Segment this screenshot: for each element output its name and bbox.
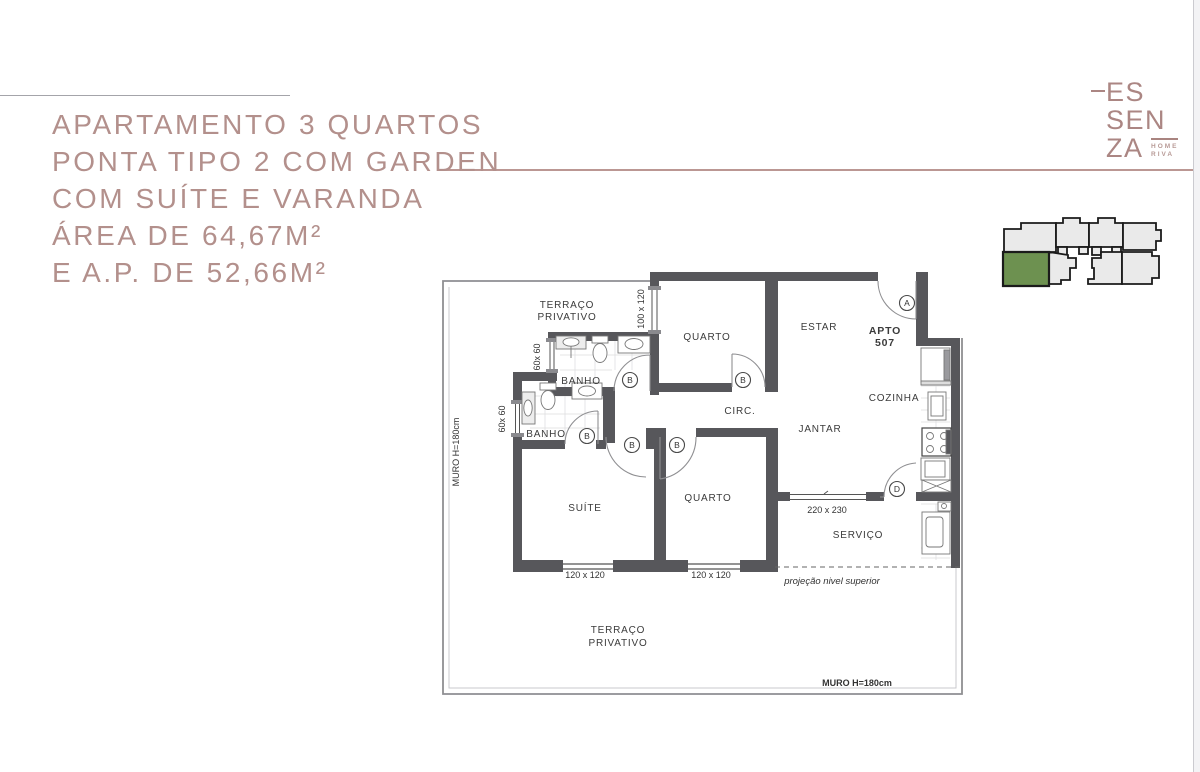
kitchen-fixtures	[921, 348, 951, 492]
dim-varanda-door: 220 x 230	[807, 505, 847, 515]
label-cozinha: COZINHA	[869, 393, 920, 404]
key-unit-bottom-2	[1049, 252, 1076, 284]
key-core-tab	[1079, 247, 1088, 254]
door-b-label: B	[740, 375, 746, 385]
label-apto-number: 507	[875, 337, 895, 349]
logo-subbrand: HOME RIVA	[1151, 138, 1178, 159]
label-terraco-bottom-2: PRIVATIVO	[588, 638, 647, 649]
label-apto: APTO	[869, 325, 901, 337]
logo-sub-1: HOME	[1151, 143, 1178, 151]
label-projecao: projeção nivel superior	[783, 576, 880, 587]
label-suite: SUÍTE	[568, 501, 601, 514]
door-b-label: B	[629, 440, 635, 450]
dim-banho1-window: 60x 60	[532, 343, 542, 370]
label-banho-2: BANHO	[526, 429, 566, 440]
key-unit-top-3	[1089, 218, 1123, 247]
plan-sheet: APARTAMENTO 3 QUARTOS PONTA TIPO 2 COM G…	[0, 0, 1200, 772]
door-badges: A B B B B B D	[580, 296, 915, 497]
logo-line-1: ES	[1106, 78, 1166, 106]
dim-quarto1-window: 100 x 120	[636, 289, 646, 329]
label-terraco-bottom-1: TERRAÇO	[591, 625, 646, 636]
page-title: APARTAMENTO 3 QUARTOS PONTA TIPO 2 COM G…	[52, 106, 501, 291]
title-line-5: E A.P. DE 52,66M²	[52, 254, 501, 291]
door-b-label: B	[584, 431, 590, 441]
title-line-2: PONTA TIPO 2 COM GARDEN	[52, 143, 501, 180]
laundry-fixtures	[922, 502, 951, 554]
label-banho-1: BANHO	[561, 376, 601, 387]
label-quarto-1: QUARTO	[683, 332, 730, 343]
dim-suite-window: 120 x 120	[565, 570, 605, 580]
door-b-label: B	[627, 375, 633, 385]
floor-plan: A B B B B B D TERRAÇO PRIVATIVO BANHO BA…	[435, 262, 975, 707]
dim-quarto2-window: 120 x 120	[691, 570, 731, 580]
key-unit-top-1	[1004, 223, 1056, 252]
label-estar: ESTAR	[801, 322, 838, 333]
logo-sub-2: RIVA	[1151, 151, 1178, 159]
label-servico: SERVIÇO	[833, 530, 883, 541]
label-muro-left: MURO H=180cm	[451, 418, 461, 487]
label-circ: CIRC.	[724, 406, 755, 417]
key-unit-top-4	[1123, 223, 1161, 250]
key-unit-highlighted	[1003, 252, 1049, 286]
bathroom1-fixtures	[556, 336, 650, 363]
top-rule-line	[0, 95, 290, 96]
door-d-label: D	[894, 484, 900, 494]
label-quarto-2: QUARTO	[684, 493, 731, 504]
logo-dash	[1091, 90, 1105, 92]
title-rule-line	[440, 169, 1193, 171]
key-unit-bottom-4	[1122, 252, 1159, 284]
door-arcs	[565, 281, 916, 497]
logo-line-2: SEN	[1106, 106, 1166, 134]
label-muro-bottom: MURO H=180cm	[822, 678, 892, 688]
key-core-tab	[1092, 247, 1101, 255]
key-unit-bottom-3	[1088, 252, 1122, 284]
dim-banho2-window: 60x 60	[497, 405, 507, 432]
key-unit-top-2	[1056, 218, 1089, 247]
door-b-label: B	[674, 440, 680, 450]
title-line-4: ÁREA DE 64,67M²	[52, 217, 501, 254]
page-right-edge	[1193, 0, 1200, 772]
label-terraco-top-1: TERRAÇO	[540, 300, 595, 311]
door-a-label: A	[904, 298, 910, 308]
label-jantar: JANTAR	[799, 424, 842, 435]
building-key-plan	[1000, 210, 1166, 292]
label-terraco-top-2: PRIVATIVO	[537, 312, 596, 323]
title-line-3: COM SUÍTE E VARANDA	[52, 180, 501, 217]
title-line-1: APARTAMENTO 3 QUARTOS	[52, 106, 501, 143]
